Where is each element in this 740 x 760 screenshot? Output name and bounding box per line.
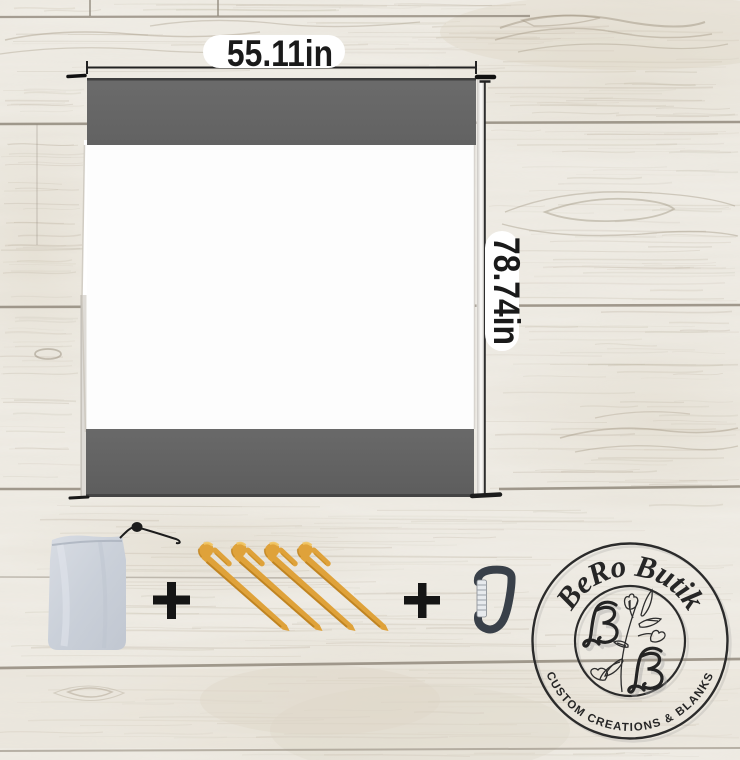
svg-text:55.11in: 55.11in bbox=[227, 34, 333, 75]
svg-text:78.74in: 78.74in bbox=[485, 237, 526, 345]
